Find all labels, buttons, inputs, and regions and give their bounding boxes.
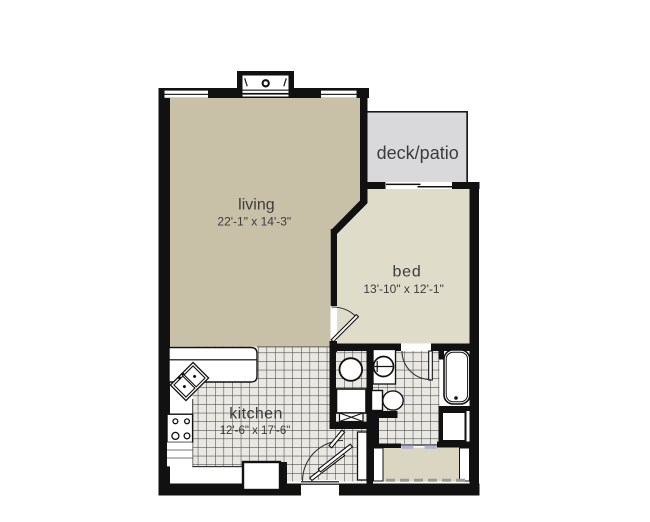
svg-text:bed: bed [392,264,421,281]
svg-text:13'-10" x 12'-1": 13'-10" x 12'-1" [363,282,443,296]
svg-text:12'-6" x 17'-6": 12'-6" x 17'-6" [220,425,291,437]
svg-text:living: living [238,196,274,213]
svg-text:deck/patio: deck/patio [377,143,459,163]
svg-text:kitchen: kitchen [229,405,283,422]
svg-text:22'-1" x 14'-3": 22'-1" x 14'-3" [217,214,291,228]
